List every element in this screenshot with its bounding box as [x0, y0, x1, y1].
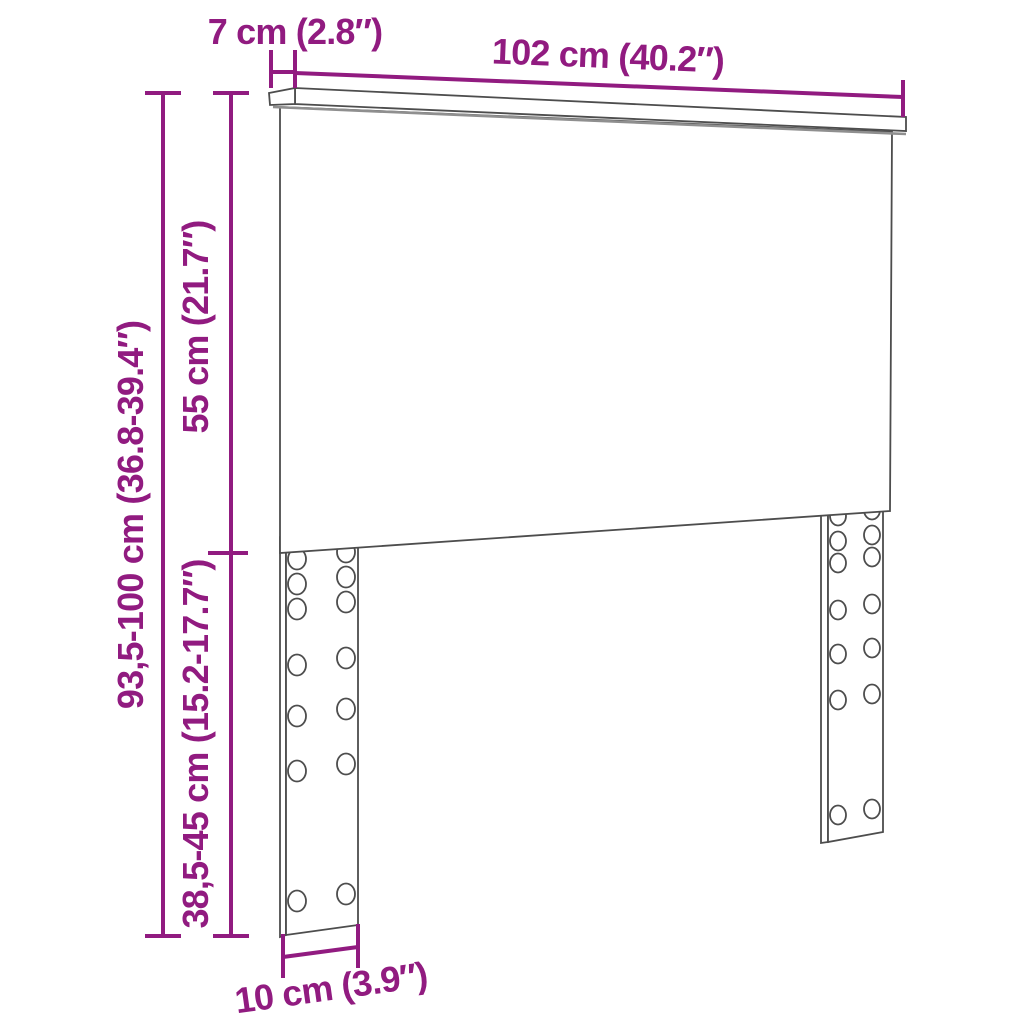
dim-label-total-height: 93,5-100 cm (36.8-39.4″) — [110, 321, 152, 709]
headboard-dimension-diagram: 7 cm (2.8″) 102 cm (40.2″) 93,5-100 cm (… — [0, 0, 1024, 1024]
dim-top-depth — [271, 50, 295, 88]
headboard-line-drawing — [0, 0, 1024, 1024]
right-leg-side-face — [821, 503, 828, 843]
right-leg — [821, 499, 883, 843]
headboard-panel — [280, 107, 892, 553]
shelf-left-end-cap — [269, 88, 295, 105]
left-leg — [280, 530, 358, 937]
dim-label-top-depth: 7 cm (2.8″) — [208, 11, 383, 53]
dim-label-leg-height: 38,5-45 cm (15.2-17.7″) — [175, 559, 217, 928]
dim-label-board-height: 55 cm (21.7″) — [175, 221, 217, 434]
